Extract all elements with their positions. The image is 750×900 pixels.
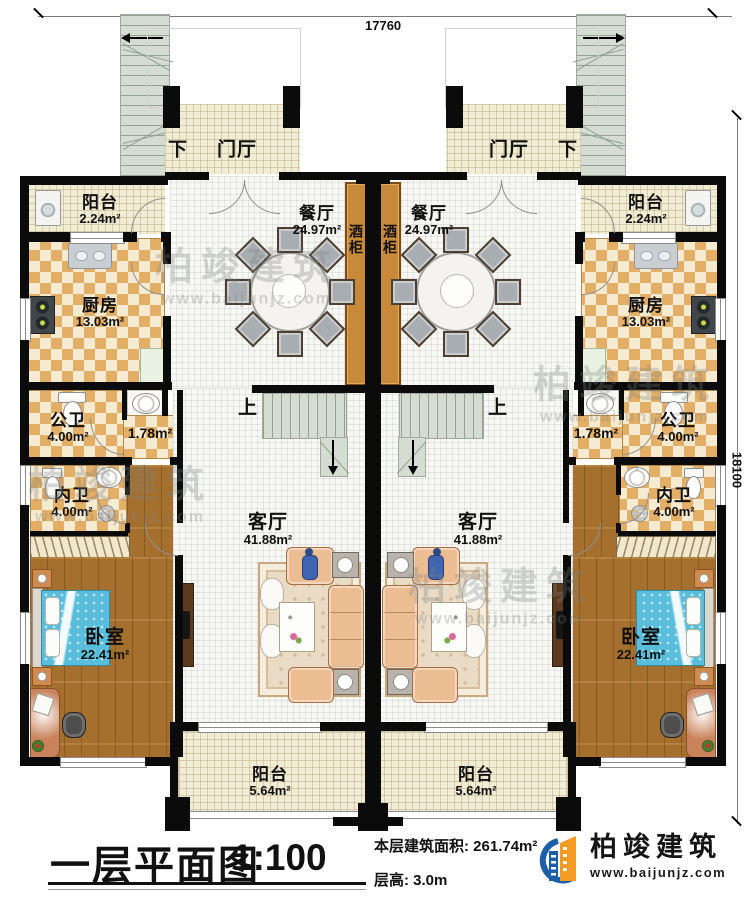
wall: [279, 172, 365, 180]
stair-label-down: 下: [558, 139, 578, 160]
wall: [125, 465, 130, 495]
wall: [381, 385, 494, 393]
room-name: 客厅: [244, 512, 292, 533]
side-table-icon: [332, 552, 359, 578]
room-name: 餐厅: [293, 204, 341, 223]
window: [20, 298, 31, 342]
unit-right: 门厅 下 阳台2.24m² 餐厅24.97m² 酒柜 厨房13.03m² 公卫4…: [381, 0, 726, 830]
pillow-icon: [45, 629, 60, 657]
window: [715, 298, 726, 342]
nightstand-icon: [694, 667, 714, 686]
room-label-living: 客厅41.88m²: [244, 512, 292, 548]
company-name: 柏竣建筑: [590, 833, 726, 863]
window: [715, 465, 726, 507]
wall: [163, 240, 171, 264]
stair-label-up: 上: [488, 397, 508, 418]
balcony-post: [165, 797, 190, 832]
title-underline: [48, 882, 366, 885]
wall: [619, 390, 624, 420]
dining-chair-icon: [329, 279, 355, 305]
unit-left: 门厅 下 阳台2.24m² 餐厅24.97m² 酒柜 厨房13.03m² 公卫4…: [20, 0, 365, 830]
closet: [30, 536, 130, 559]
window: [198, 722, 322, 733]
room-name: 上: [488, 397, 508, 418]
room-area: 4.00m²: [51, 505, 92, 520]
wall: [356, 172, 390, 184]
title-underline: [48, 889, 366, 890]
wall: [30, 531, 128, 536]
floor-height-label: 层高:: [374, 872, 409, 889]
room-name: 下: [558, 139, 578, 160]
interior-stairs: [262, 393, 347, 439]
stove-icon: [30, 296, 55, 334]
party-wall: [365, 172, 381, 832]
wall: [177, 465, 183, 523]
room-area: 1.78m²: [128, 426, 172, 442]
lamp-icon: [337, 557, 353, 573]
stair-arrow: [412, 440, 414, 467]
wall: [163, 316, 171, 390]
room-name: 阳台: [455, 765, 496, 784]
wall: [170, 722, 198, 731]
basin-icon: [586, 393, 614, 414]
room-name: 阳台: [625, 193, 666, 212]
wall: [563, 465, 569, 523]
wall: [717, 505, 726, 612]
room-label-public-bath: 公卫4.00m²: [657, 411, 698, 445]
desk-chair-icon: [62, 712, 86, 738]
room-label-balcony-bottom: 阳台5.64m²: [455, 765, 496, 799]
person-body: [302, 555, 318, 580]
wall: [548, 722, 576, 731]
room-label-washroom: 1.78m²: [128, 426, 172, 442]
wall: [381, 172, 467, 180]
wall: [575, 316, 583, 390]
table-pedestal: [440, 274, 474, 308]
room-area: 4.00m²: [47, 430, 88, 445]
room-area: 4.00m²: [657, 430, 698, 445]
room-name: 内卫: [653, 486, 694, 505]
wall: [563, 390, 569, 457]
dining-chair-icon: [495, 279, 521, 305]
sofa-long-icon: [382, 585, 418, 669]
basin-icon: [132, 393, 160, 414]
wall: [686, 757, 726, 766]
room-label-private-bath: 内卫4.00m²: [51, 486, 92, 520]
wall: [177, 390, 183, 457]
wall: [165, 172, 209, 180]
room-name: 内卫: [51, 486, 92, 505]
room-area: 13.03m²: [622, 315, 670, 330]
room-area: 22.41m²: [617, 648, 665, 663]
room-name: 下: [168, 139, 188, 160]
basin-icon: [96, 467, 122, 488]
room-label-balcony-bottom: 阳台5.64m²: [249, 765, 290, 799]
porch-pillar: [566, 86, 583, 128]
window: [70, 232, 125, 244]
room-area: 1.78m²: [574, 426, 618, 442]
room-label-dining: 餐厅24.97m²: [293, 204, 341, 238]
wall: [20, 505, 29, 612]
company-logo-icon: [534, 833, 584, 889]
wall: [20, 176, 168, 185]
room-label-kitchen: 厨房13.03m²: [76, 296, 124, 330]
wall: [20, 340, 29, 465]
lamp-icon: [393, 557, 409, 573]
person-body: [428, 555, 444, 580]
coffee-table-icon: [431, 602, 467, 652]
room-name: 公卫: [47, 411, 88, 430]
company-logo: 柏竣建筑 www.baijunjz.com: [534, 833, 726, 889]
tv-icon: [182, 611, 190, 639]
title-block: 一层平面图 1:100 本层建筑面积: 261.74m² 层高: 3.0m 柏竣…: [0, 831, 750, 900]
window: [621, 232, 676, 244]
room-area: 13.03m²: [76, 315, 124, 330]
room-label-kitchen: 厨房13.03m²: [622, 296, 670, 330]
room-name: 上: [238, 397, 258, 418]
stair-arrow-head: [121, 33, 130, 43]
wall: [616, 465, 621, 495]
room-name: 门厅: [489, 139, 529, 160]
wall: [28, 382, 172, 390]
wall: [717, 664, 726, 765]
room-area: 41.88m²: [454, 533, 502, 548]
wall: [618, 531, 716, 536]
plant-icon: [32, 740, 44, 752]
dining-chair-icon: [225, 279, 251, 305]
stove-icon: [691, 296, 716, 334]
washing-machine-icon: [685, 190, 711, 226]
wall: [20, 457, 132, 465]
basin-icon: [624, 467, 650, 488]
wall: [170, 731, 178, 797]
window: [20, 465, 31, 507]
window: [599, 757, 686, 768]
table-pedestal: [272, 274, 306, 308]
sofa-icon: [412, 667, 458, 703]
room-label-public-bath: 公卫4.00m²: [47, 411, 88, 445]
room-label-wine-cabinet: 酒柜: [380, 224, 400, 256]
wall: [320, 722, 365, 731]
logo-text: 柏竣建筑 www.baijunjz.com: [590, 833, 726, 880]
floor-area-value: 261.74m²: [473, 838, 537, 855]
wall: [568, 731, 576, 797]
lamp-icon: [337, 674, 353, 690]
lamp-icon: [393, 674, 409, 690]
nightstand-icon: [32, 569, 52, 588]
sofa-long-icon: [328, 585, 364, 669]
room-name: 阳台: [79, 193, 120, 212]
wall: [20, 232, 70, 242]
room-label-private-bath: 内卫4.00m²: [653, 486, 694, 520]
kitchen-sink-icon: [68, 242, 112, 269]
wall: [575, 240, 583, 264]
wall: [609, 232, 623, 242]
wall: [563, 457, 576, 465]
window: [715, 612, 726, 666]
side-table-icon: [387, 552, 414, 578]
wall: [574, 382, 718, 390]
room-label-washroom: 1.78m²: [574, 426, 618, 442]
stair-arrow-head: [408, 466, 418, 475]
pillow-icon: [686, 597, 701, 625]
room-area: 41.88m²: [244, 533, 292, 548]
room-name: 门厅: [217, 139, 257, 160]
wall: [162, 388, 168, 416]
nightstand-icon: [694, 569, 714, 588]
floor-area-label: 本层建筑面积:: [374, 838, 469, 855]
wall: [676, 232, 726, 242]
room-name: 客厅: [454, 512, 502, 533]
room-area: 2.24m²: [625, 212, 666, 227]
scale-label: 1:100: [232, 837, 327, 879]
wall: [578, 176, 726, 185]
room-name: 阳台: [249, 765, 290, 784]
dimension-right-label: 18100: [730, 452, 745, 488]
person-icon: [302, 548, 317, 579]
room-label-wine-cabinet: 酒柜: [346, 224, 366, 256]
side-table-icon: [387, 669, 414, 695]
side-table-icon: [332, 669, 359, 695]
room-label-balcony-top: 阳台2.24m²: [79, 193, 120, 227]
room-label-balcony-top: 阳台2.24m²: [625, 193, 666, 227]
dining-chair-icon: [391, 279, 417, 305]
room-area: 5.64m²: [249, 784, 290, 799]
porch-pillar: [283, 86, 300, 128]
stair-label-up: 上: [238, 397, 258, 418]
wall: [717, 340, 726, 465]
room-name: 卧室: [81, 627, 129, 648]
room-area: 24.97m²: [293, 223, 341, 238]
room-label-bedroom: 卧室22.41m²: [617, 627, 665, 663]
room-label-foyer: 门厅: [217, 139, 257, 160]
balcony-post: [556, 797, 581, 832]
company-website: www.baijunjz.com: [590, 865, 726, 880]
wall: [381, 722, 426, 731]
balcony-post: [358, 803, 388, 832]
desk-chair-icon: [660, 712, 684, 738]
porch-pillar: [163, 86, 180, 128]
window: [20, 612, 31, 666]
dining-chair-icon: [443, 331, 469, 357]
wall: [20, 664, 29, 765]
room-name: 厨房: [76, 296, 124, 315]
wall: [20, 757, 60, 766]
room-area: 4.00m²: [653, 505, 694, 520]
washing-machine-icon: [35, 190, 61, 226]
wall: [123, 232, 137, 242]
stair-arrow-head: [328, 466, 338, 475]
room-name: 卧室: [617, 627, 665, 648]
room-label-living: 客厅41.88m²: [454, 512, 502, 548]
nightstand-icon: [32, 667, 52, 686]
sofa-icon: [288, 667, 334, 703]
floor-info: 本层建筑面积: 261.74m² 层高: 3.0m: [374, 839, 537, 888]
room-name: 厨房: [622, 296, 670, 315]
window: [424, 722, 548, 733]
dining-chair-icon: [277, 331, 303, 357]
floor-height-value: 3.0m: [413, 872, 447, 889]
wall: [578, 388, 584, 416]
balcony-railing: [381, 811, 556, 819]
pillow-icon: [686, 629, 701, 657]
plant-icon: [702, 740, 714, 752]
stair-label-down: 下: [168, 139, 188, 160]
room-label-bedroom: 卧室22.41m²: [81, 627, 129, 663]
room-area: 2.24m²: [79, 212, 120, 227]
room-name: 公卫: [657, 411, 698, 430]
interior-stairs: [399, 393, 484, 439]
wall: [614, 457, 726, 465]
stair-arrow-head: [616, 33, 625, 43]
window: [60, 757, 147, 768]
room-name: 餐厅: [405, 204, 453, 223]
wall: [252, 385, 365, 393]
room-area: 22.41m²: [81, 648, 129, 663]
room-label-foyer: 门厅: [489, 139, 529, 160]
person-icon: [429, 548, 444, 579]
room-label-dining: 餐厅24.97m²: [405, 204, 453, 238]
wall: [170, 457, 183, 465]
room-area: 5.64m²: [455, 784, 496, 799]
wall: [537, 172, 581, 180]
room-area: 24.97m²: [405, 223, 453, 238]
coffee-table-icon: [279, 602, 315, 652]
kitchen-sink-icon: [634, 242, 678, 269]
porch-pillar: [446, 86, 463, 128]
pillow-icon: [45, 597, 60, 625]
floor-plan-canvas: 17760 18100: [0, 0, 750, 900]
closet: [616, 536, 716, 559]
stair-arrow: [332, 440, 334, 467]
wall: [122, 390, 127, 420]
